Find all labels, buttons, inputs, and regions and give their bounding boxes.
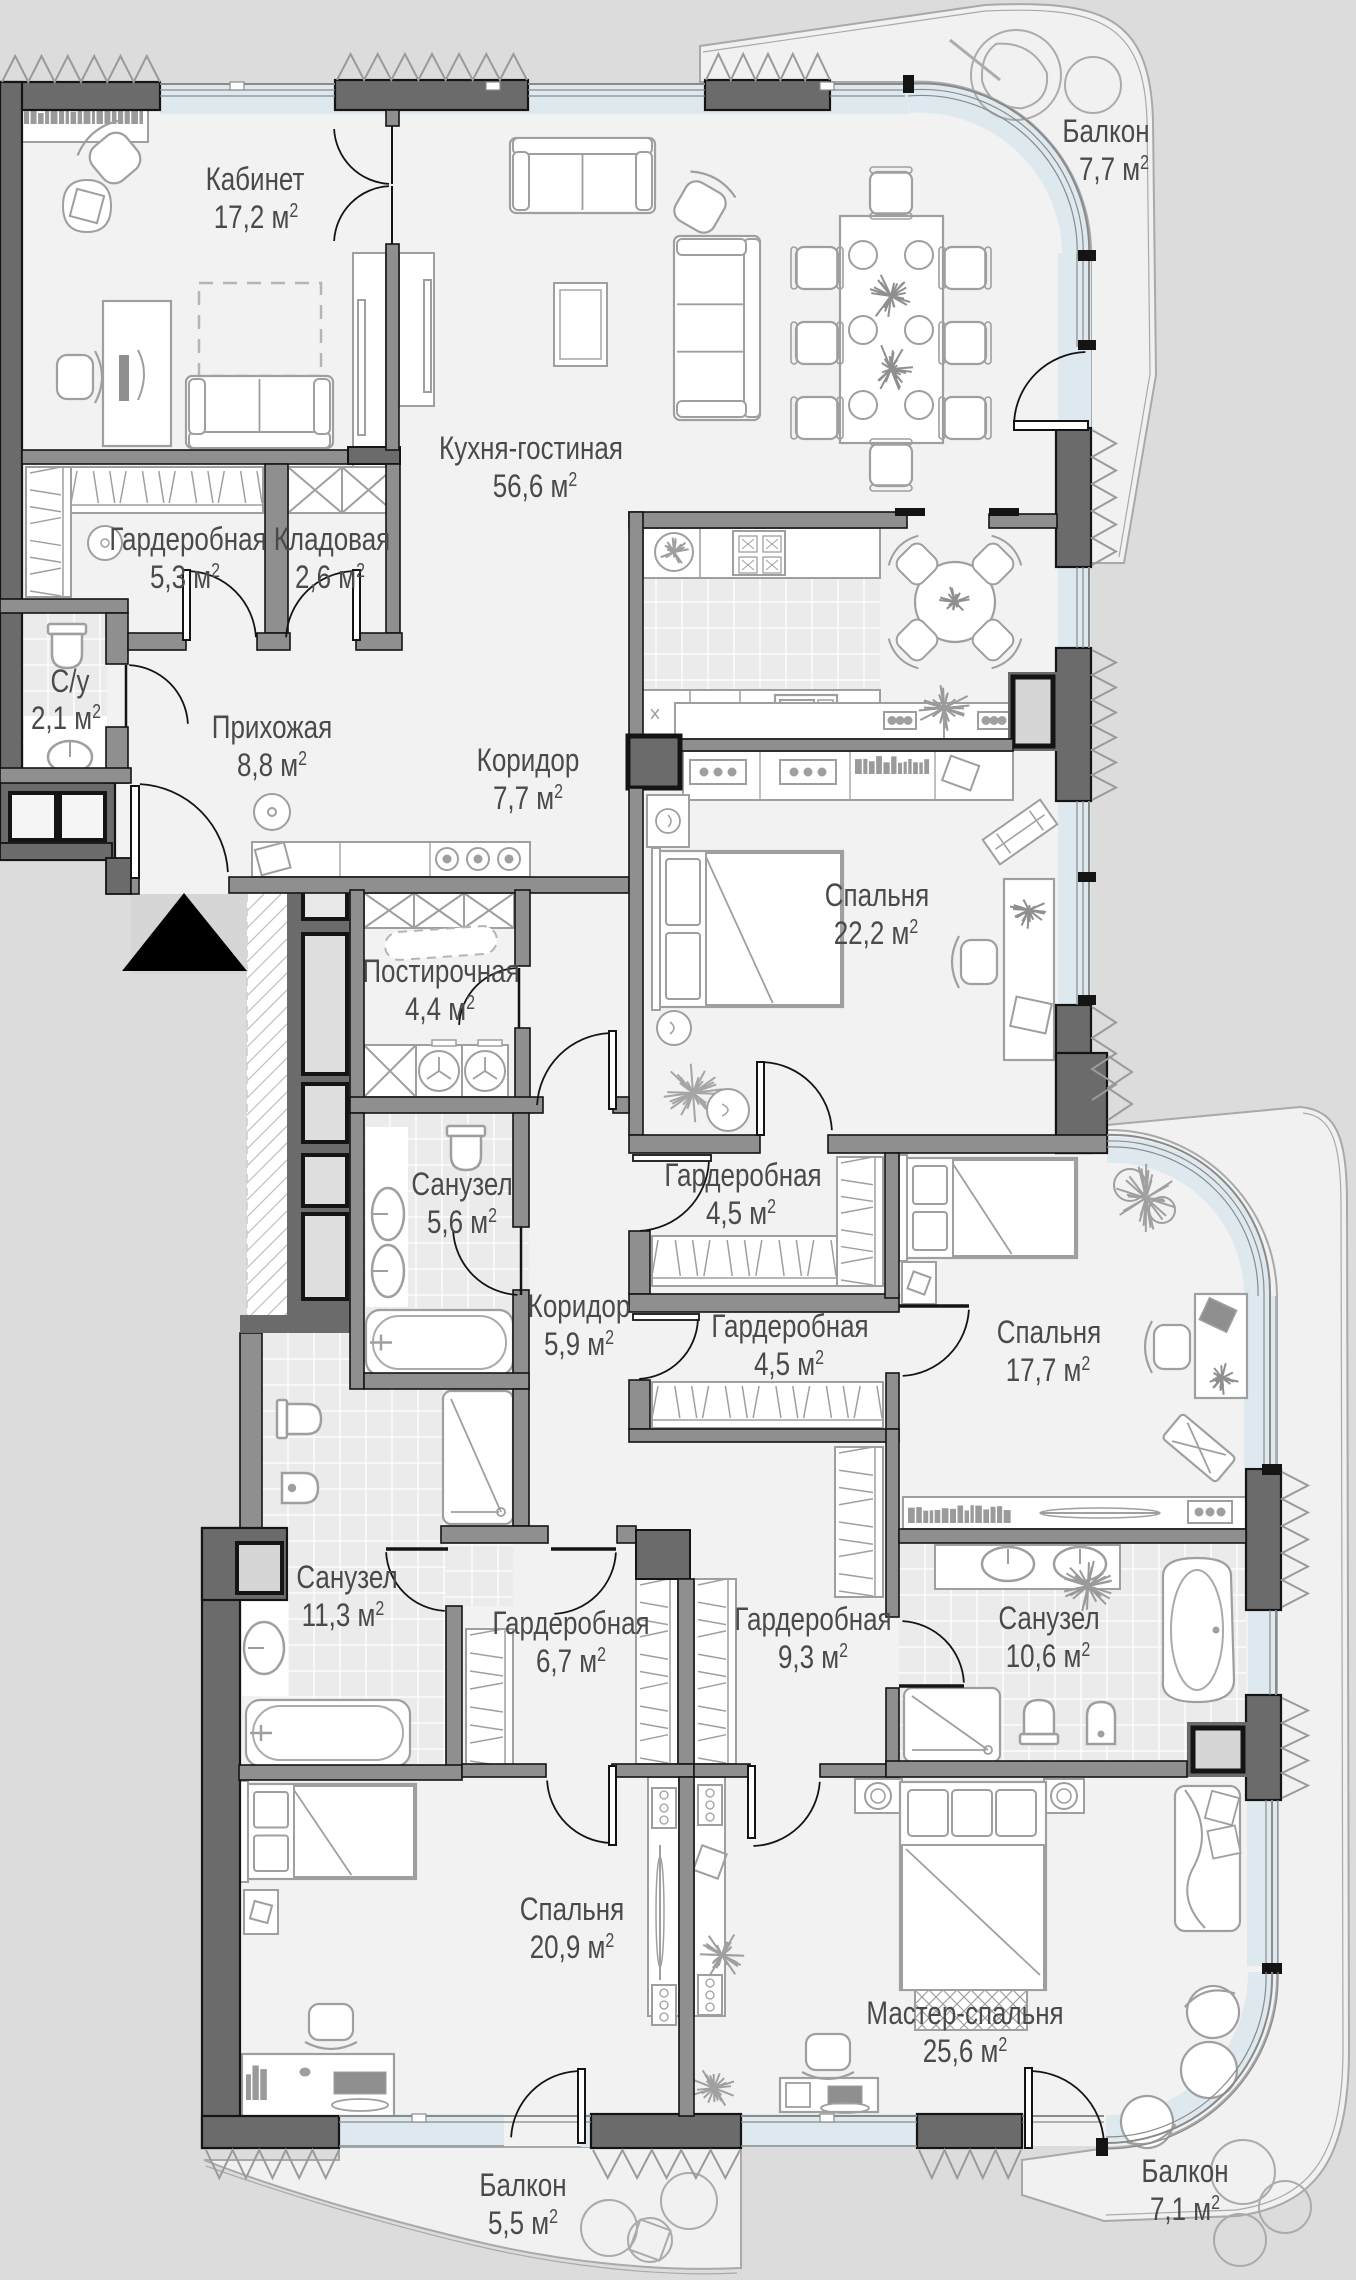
- svg-text:Балкон: Балкон: [1141, 2153, 1228, 2189]
- svg-text:Коридор: Коридор: [477, 742, 580, 778]
- svg-text:С/у: С/у: [51, 663, 90, 699]
- svg-text:Коридор: Коридор: [528, 1288, 631, 1324]
- svg-text:9,3 м2: 9,3 м2: [778, 1639, 848, 1675]
- svg-text:Кабинет: Кабинет: [206, 161, 305, 197]
- svg-text:Гардеробная: Гардеробная: [109, 521, 266, 557]
- svg-text:7,1 м2: 7,1 м2: [1150, 2191, 1220, 2227]
- svg-text:Санузел: Санузел: [296, 1559, 397, 1595]
- svg-text:5,3 м2: 5,3 м2: [150, 559, 220, 595]
- svg-text:25,6 м2: 25,6 м2: [923, 2033, 1008, 2069]
- svg-text:Спальня: Спальня: [997, 1314, 1101, 1350]
- svg-text:Санузел: Санузел: [998, 1600, 1099, 1636]
- svg-text:22,2 м2: 22,2 м2: [834, 915, 919, 951]
- svg-text:5,6 м2: 5,6 м2: [427, 1204, 497, 1240]
- svg-text:4,5 м2: 4,5 м2: [754, 1346, 824, 1382]
- svg-text:56,6 м2: 56,6 м2: [493, 468, 578, 504]
- svg-text:Балкон: Балкон: [479, 2167, 566, 2203]
- svg-text:Прихожая: Прихожая: [212, 709, 332, 745]
- svg-text:Гардеробная: Гардеробная: [711, 1308, 868, 1344]
- svg-text:2,6 м2: 2,6 м2: [295, 559, 365, 595]
- svg-text:×: ×: [649, 700, 660, 728]
- svg-text:7,7 м2: 7,7 м2: [1079, 151, 1149, 187]
- svg-text:Гардеробная: Гардеробная: [734, 1601, 891, 1637]
- svg-text:8,8 м2: 8,8 м2: [237, 747, 307, 783]
- svg-text:Санузел: Санузел: [411, 1166, 512, 1202]
- svg-text:6,7 м2: 6,7 м2: [536, 1643, 606, 1679]
- svg-text:4,4 м2: 4,4 м2: [405, 991, 475, 1027]
- svg-text:10,6 м2: 10,6 м2: [1006, 1638, 1091, 1674]
- svg-text:Спальня: Спальня: [520, 1891, 624, 1927]
- svg-text:7,7 м2: 7,7 м2: [493, 780, 563, 816]
- svg-text:Гардеробная: Гардеробная: [664, 1157, 821, 1193]
- svg-text:Гардеробная: Гардеробная: [492, 1605, 649, 1641]
- svg-text:Балкон: Балкон: [1062, 113, 1149, 149]
- svg-text:Кладовая: Кладовая: [274, 521, 390, 557]
- svg-text:Мастер-спальня: Мастер-спальня: [866, 1995, 1063, 2031]
- svg-text:Спальня: Спальня: [825, 877, 929, 913]
- svg-text:5,5 м2: 5,5 м2: [488, 2205, 558, 2241]
- svg-text:5,9 м2: 5,9 м2: [544, 1326, 614, 1362]
- svg-text:2,1 м2: 2,1 м2: [31, 700, 101, 736]
- svg-text:4,5 м2: 4,5 м2: [706, 1195, 776, 1231]
- svg-text:20,9 м2: 20,9 м2: [530, 1929, 615, 1965]
- svg-text:Кухня-гостиная: Кухня-гостиная: [439, 430, 623, 466]
- svg-text:17,7 м2: 17,7 м2: [1006, 1352, 1091, 1388]
- svg-text:Постирочная: Постирочная: [362, 953, 519, 989]
- svg-text:17,2 м2: 17,2 м2: [214, 199, 299, 235]
- svg-text:11,3 м2: 11,3 м2: [302, 1597, 385, 1633]
